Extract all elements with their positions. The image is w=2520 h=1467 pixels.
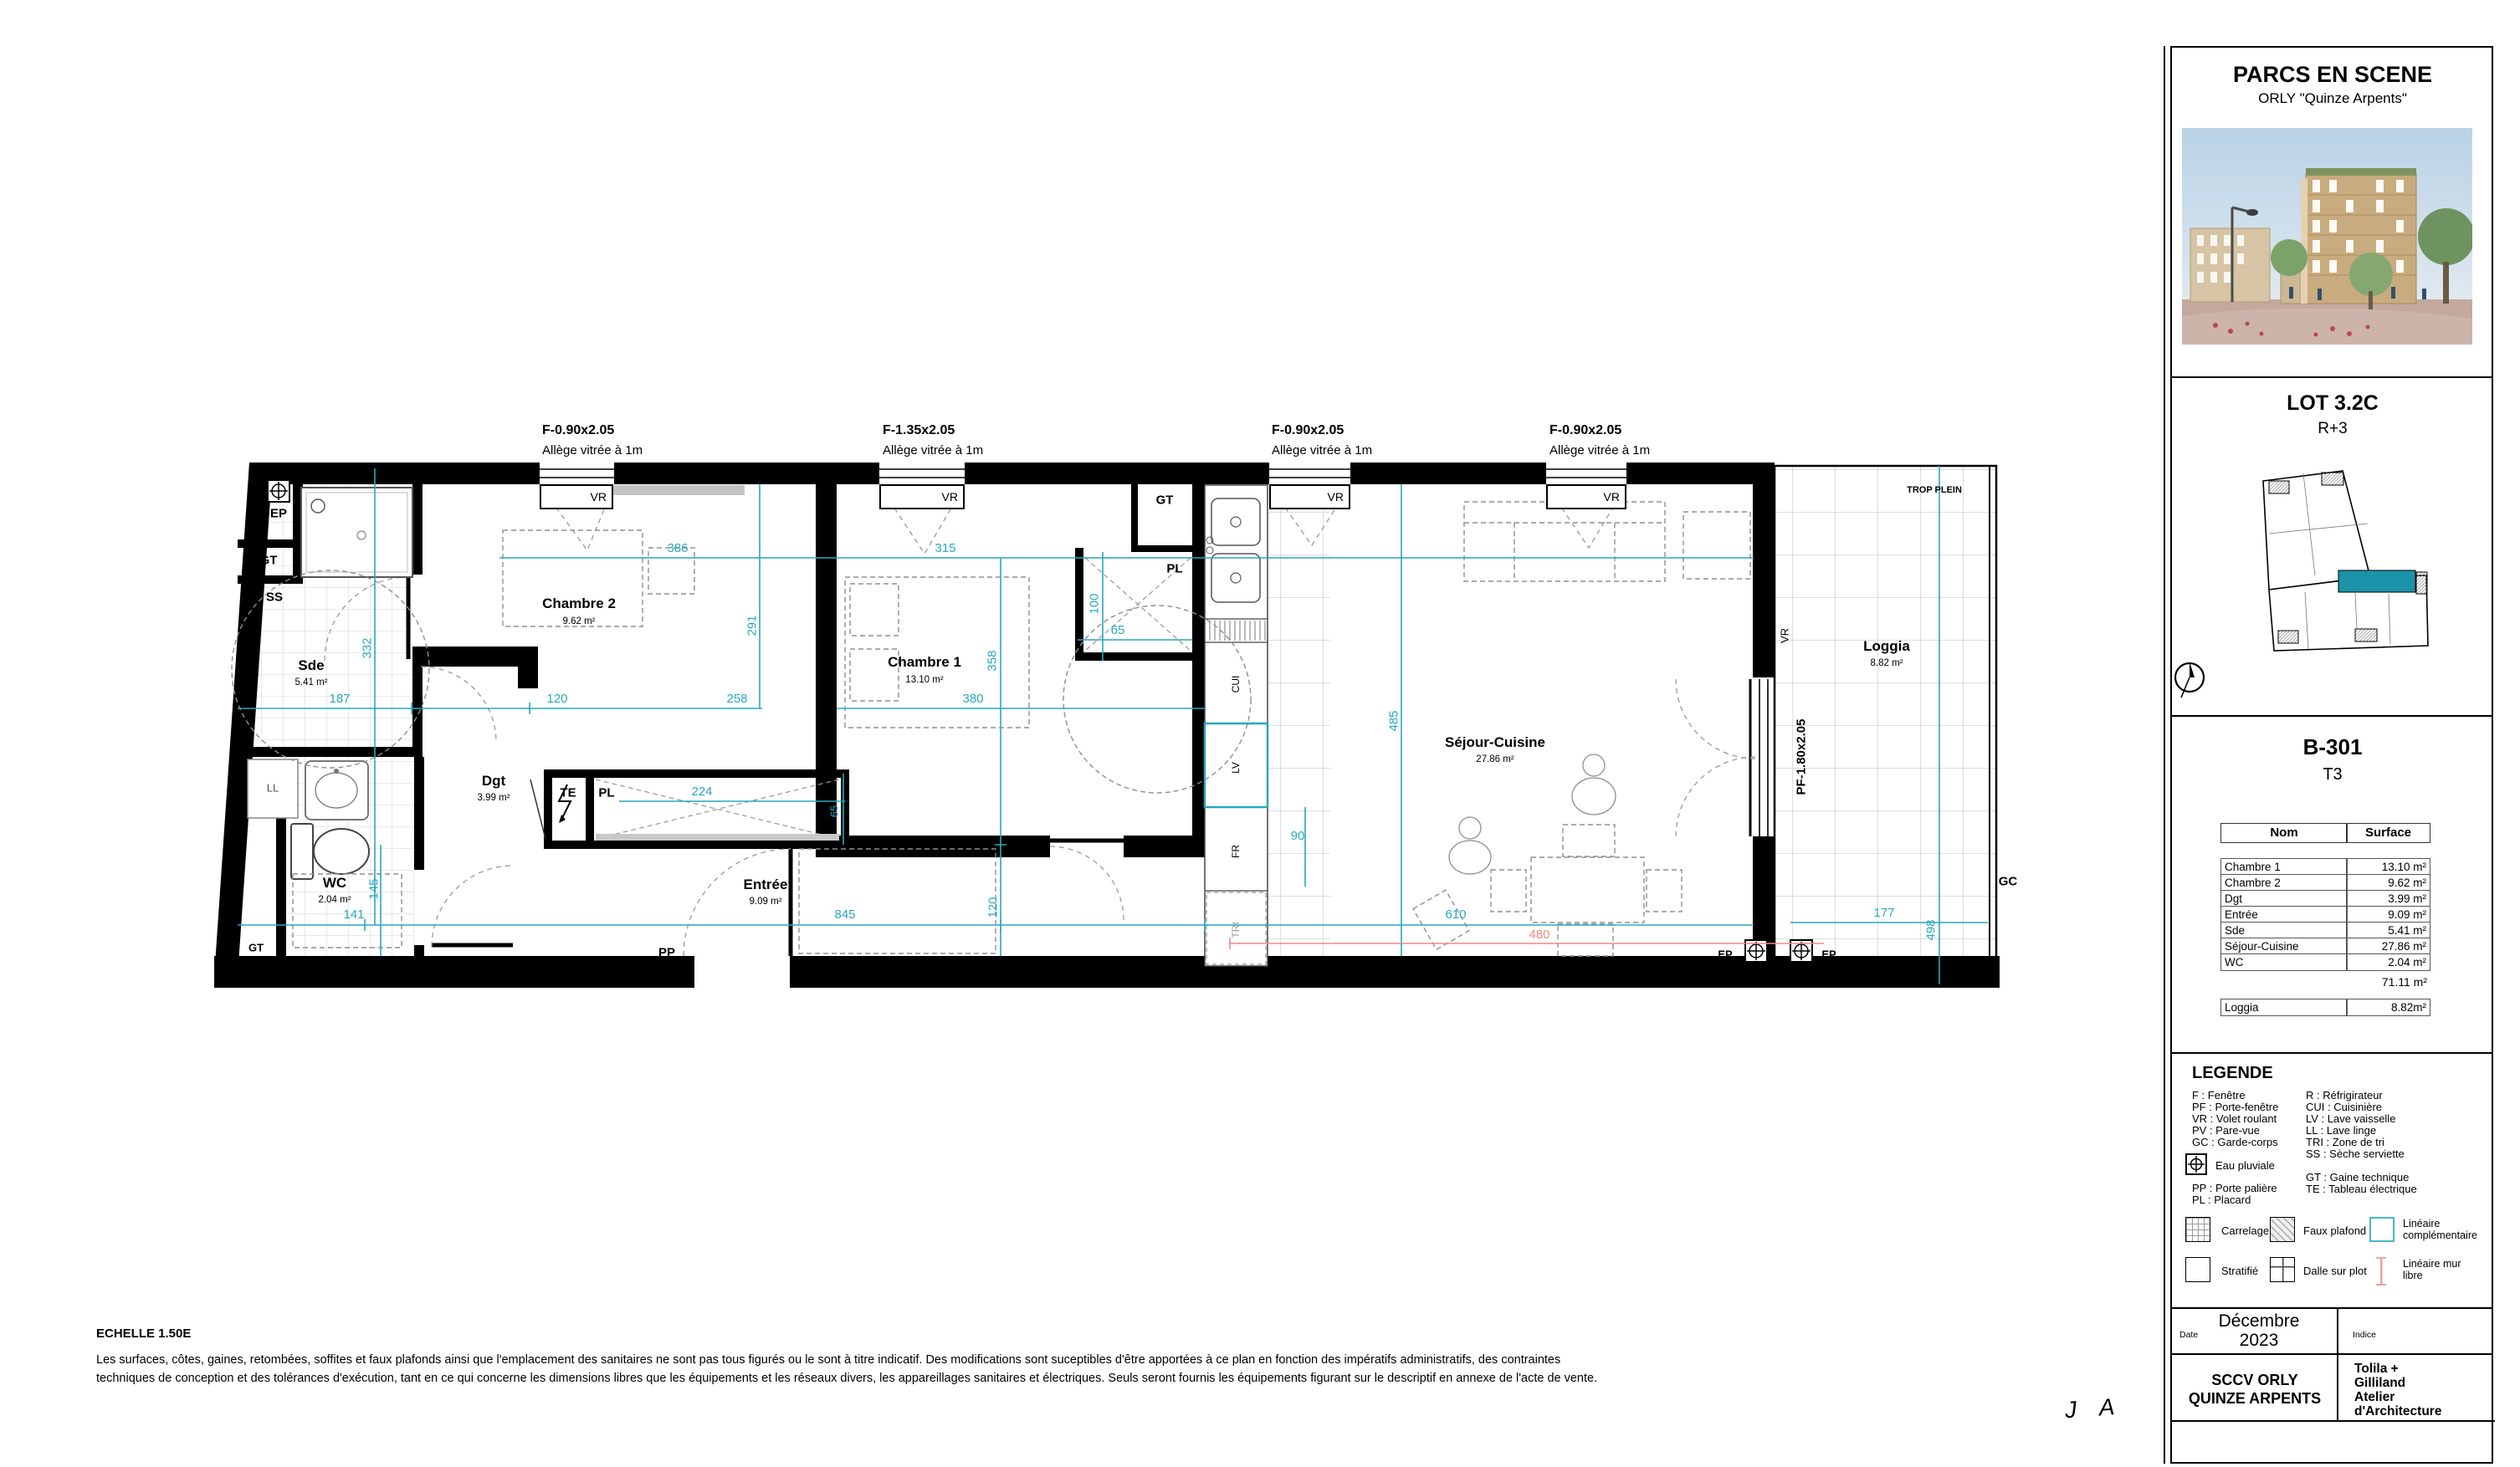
- table-loggia-name: Loggia: [2220, 999, 2348, 1016]
- legend-item: TE : Tableau électrique: [2306, 1183, 2417, 1195]
- table-row-name: Entrée: [2220, 906, 2348, 923]
- dim-177: 177: [1873, 906, 1894, 920]
- surface-table-header-nom: Nom: [2220, 823, 2348, 843]
- swatch-stratifie: [2185, 1257, 2210, 1282]
- architect-line: Gilliland: [2354, 1376, 2405, 1391]
- room-entree-name: Entrée: [744, 877, 788, 893]
- panel-divider-2: [2170, 715, 2493, 717]
- legend-eau-pluviale: Eau pluviale: [2215, 1159, 2275, 1172]
- table-row-name: Sde: [2220, 922, 2348, 938]
- marker-cui: CUI: [1230, 676, 1242, 693]
- window-4-shutter: VR: [1546, 484, 1626, 509]
- legend-item: GC : Garde-corps: [2192, 1136, 2278, 1148]
- legend-item: PP : Porte palière: [2192, 1182, 2277, 1194]
- dim-187: 187: [329, 692, 350, 706]
- dim-258: 258: [726, 692, 747, 706]
- dim-386: 386: [667, 541, 688, 555]
- table-row-surface: 3.99 m²: [2346, 890, 2430, 907]
- marker-ll: LL: [267, 782, 279, 795]
- marker-ss: SS: [266, 590, 283, 605]
- swatch-lineaire-mur-libre: [2376, 1257, 2386, 1286]
- kitchen-tiles: [1268, 484, 1330, 956]
- legend-item: VR : Volet roulant: [2192, 1112, 2277, 1125]
- room-sejour-area: 27.86 m²: [1476, 754, 1514, 764]
- window-4-note: Allège vitrée à 1m: [1549, 443, 1650, 457]
- project-rendering: [2182, 128, 2472, 345]
- room-chambre2-area: 9.62 m²: [563, 616, 596, 626]
- project-title: PARCS EN SCENE: [2233, 62, 2432, 88]
- room-chambre2-name: Chambre 2: [542, 595, 616, 612]
- legend-item: TRI : Zone de tri: [2306, 1136, 2384, 1148]
- swatch-lineaire-mur-libre-label1: Linéaire mur: [2403, 1258, 2461, 1270]
- panel-divider-1: [2170, 376, 2493, 378]
- swatch-carrelage-label: Carrelage: [2221, 1224, 2269, 1237]
- door-arcs: [325, 577, 1755, 956]
- north-compass: [2170, 659, 2209, 701]
- architect-line: Atelier: [2354, 1390, 2395, 1405]
- unit-code: B-301: [2303, 734, 2363, 760]
- date-label: Date: [2179, 1330, 2198, 1340]
- owner-line2: QUINZE ARPENTS: [2189, 1390, 2321, 1408]
- table-row-name: WC: [2220, 953, 2348, 971]
- dim-845: 845: [834, 907, 855, 922]
- dim-145: 145: [367, 878, 382, 899]
- room-loggia-area: 8.82 m²: [1871, 658, 1903, 668]
- disclaimer-line1: Les surfaces, côtes, gaines, retombées, …: [96, 1353, 1560, 1367]
- surface-table-header-surface: Surface: [2346, 823, 2430, 843]
- room-wc-area: 2.04 m²: [319, 895, 351, 905]
- marker-ep-bottom-right: EP: [1821, 948, 1836, 961]
- marker-pp: PP: [658, 946, 675, 960]
- window-1-spec: F-0.90x2.05: [542, 423, 614, 438]
- table-loggia-surface: 8.82m²: [2346, 999, 2430, 1016]
- signature: J A: [2064, 1393, 2123, 1424]
- marker-fr: FR: [1230, 845, 1242, 858]
- eau-pluviale-icon: [2185, 1153, 2207, 1175]
- legend-item: LV : Lave vaisselle: [2306, 1112, 2395, 1125]
- swatch-stratifie-label: Stratifié: [2221, 1265, 2258, 1277]
- dim-65b: 65: [1111, 623, 1125, 637]
- dim-291: 291: [745, 615, 760, 636]
- room-dgt-name: Dgt: [482, 773, 505, 790]
- dim-65a: 65: [828, 805, 841, 817]
- table-row-name: Dgt: [2220, 890, 2348, 907]
- swatch-lineaire-complementaire-label2: complémentaire: [2403, 1229, 2477, 1241]
- swatch-lineaire-complementaire-label1: Linéaire: [2403, 1218, 2440, 1229]
- window-3-spec: F-0.90x2.05: [1272, 423, 1344, 438]
- swatch-faux-plafond: [2270, 1217, 2295, 1242]
- dim-120b: 120: [986, 897, 1001, 918]
- legend-title: LEGENDE: [2192, 1064, 2273, 1083]
- room-dgt-area: 3.99 m²: [478, 793, 510, 803]
- room-entree-area: 9.09 m²: [750, 897, 782, 907]
- dim-498: 498: [1924, 919, 1939, 940]
- table-total: 71.11 m²: [2346, 975, 2427, 989]
- legend-item: PV : Pare-vue: [2192, 1124, 2260, 1137]
- marker-pl-entree: PL: [598, 786, 614, 800]
- room-sde-area: 5.41 m²: [295, 677, 328, 687]
- dim-120a: 120: [546, 692, 567, 706]
- swatch-lineaire-mur-libre-label2: libre: [2403, 1270, 2423, 1281]
- dim-100: 100: [1088, 593, 1102, 614]
- window-2-spec: F-1.35x2.05: [883, 423, 955, 438]
- legend-item: PL : Placard: [2192, 1194, 2251, 1206]
- swatch-faux-plafond-label: Faux plafond: [2303, 1224, 2366, 1237]
- table-row-surface: 9.62 m²: [2346, 874, 2430, 891]
- dim-480: 480: [1529, 928, 1549, 942]
- panel-outer-edge: [2164, 46, 2165, 1464]
- dim-224: 224: [691, 785, 712, 799]
- walls: [214, 463, 2000, 988]
- marker-gt-bottomleft: GT: [248, 942, 264, 954]
- legend-item: GT : Gaine technique: [2306, 1171, 2409, 1183]
- legend-item: R : Réfrigirateur: [2306, 1089, 2383, 1102]
- marker-pl-chambre1: PL: [1166, 562, 1182, 576]
- table-row-name: Chambre 2: [2220, 874, 2348, 891]
- plan-drawing: [0, 0, 2520, 1467]
- window-1-note: Allège vitrée à 1m: [542, 443, 643, 457]
- panel-divider-3: [2170, 1052, 2493, 1054]
- legend-item: PF : Porte-fenêtre: [2192, 1101, 2278, 1113]
- marker-tri: TRI: [1230, 922, 1242, 938]
- marker-gt-topleft: GT: [260, 554, 278, 568]
- table-row-surface: 5.41 m²: [2346, 922, 2430, 938]
- dim-380: 380: [962, 692, 983, 706]
- marker-ep-topleft: EP: [270, 507, 287, 521]
- swatch-lineaire-complementaire: [2369, 1217, 2395, 1242]
- furniture: [232, 502, 1750, 956]
- marker-vr-bay: VR: [1779, 628, 1791, 643]
- room-sde-name: Sde: [298, 657, 324, 674]
- date-value: Décembre 2023: [2209, 1311, 2309, 1350]
- table-row-surface: 2.04 m²: [2346, 953, 2430, 971]
- window-4-spec: F-0.90x2.05: [1549, 423, 1621, 438]
- room-chambre1-name: Chambre 1: [888, 654, 961, 671]
- window-2-note: Allège vitrée à 1m: [883, 443, 983, 457]
- legend-item: CUI : Cuisinière: [2306, 1101, 2382, 1113]
- project-subtitle: ORLY "Quinze Arpents": [2258, 90, 2407, 107]
- disclaimer-line2: techniques de conception et des toléranc…: [96, 1372, 1597, 1385]
- window-3-note: Allège vitrée à 1m: [1272, 443, 1372, 457]
- room-chambre1-area: 13.10 m²: [905, 675, 943, 685]
- dim-141: 141: [343, 907, 364, 922]
- dim-358: 358: [986, 650, 1000, 671]
- bay-spec: PF-1.80x2.05: [1795, 719, 1809, 795]
- dim-485: 485: [1387, 710, 1401, 731]
- room-sejour-name: Séjour-Cuisine: [1445, 734, 1545, 751]
- marker-gt-kitchen: GT: [1156, 493, 1174, 508]
- swatch-dalle-sur-plot: [2270, 1257, 2295, 1282]
- dim-610: 610: [1445, 907, 1466, 922]
- table-row-surface: 9.09 m²: [2346, 906, 2430, 923]
- window-2-shutter: VR: [879, 484, 965, 509]
- floor-plan-sheet: F-0.90x2.05 Allège vitrée à 1m VR F-1.35…: [0, 0, 2520, 1467]
- indice-label: Indice: [2353, 1330, 2376, 1340]
- owner-line1: SCCV ORLY: [2211, 1372, 2297, 1389]
- marker-gc: GC: [1999, 875, 2018, 889]
- unit-type: T3: [2323, 765, 2342, 785]
- room-loggia-name: Loggia: [1863, 638, 1910, 655]
- marker-te: TE: [560, 786, 576, 800]
- lot-title: LOT 3.2C: [2287, 391, 2379, 416]
- marker-trop-plein: TROP PLEIN: [1907, 485, 1962, 495]
- scale-label: ECHELLE 1.50E: [96, 1326, 191, 1341]
- room-wc-name: WC: [323, 875, 346, 892]
- dim-332: 332: [361, 637, 375, 658]
- dim-90: 90: [1291, 829, 1305, 843]
- window-1-shutter: VR: [540, 484, 613, 509]
- window-swings: [540, 485, 1626, 554]
- marker-lv: LV: [1230, 762, 1242, 774]
- swatch-dalle-sur-plot-label: Dalle sur plot: [2303, 1265, 2367, 1277]
- dim-315: 315: [935, 541, 955, 555]
- table-row-surface: 13.10 m²: [2346, 858, 2430, 875]
- legend-item: LL : Lave linge: [2306, 1124, 2376, 1137]
- architect-line: Tolila +: [2354, 1362, 2399, 1377]
- legend-item: F : Fenêtre: [2192, 1089, 2246, 1102]
- table-row-surface: 27.86 m²: [2346, 938, 2430, 954]
- key-plan: [2221, 458, 2456, 672]
- lot-level: R+3: [2318, 420, 2347, 438]
- people: [1449, 754, 1616, 874]
- ep-symbols: [268, 480, 1812, 962]
- legend-item: SS : Sèche serviette: [2306, 1148, 2405, 1160]
- window-3-shutter: VR: [1269, 484, 1350, 509]
- table-row-name: Séjour-Cuisine: [2220, 938, 2348, 954]
- swatch-carrelage: [2185, 1217, 2210, 1242]
- dimension-lines-teal: [238, 466, 1988, 984]
- architect-line: d'Architecture: [2354, 1404, 2441, 1419]
- marker-ep-bottom-left: EP: [1718, 948, 1732, 961]
- table-row-name: Chambre 1: [2220, 858, 2348, 875]
